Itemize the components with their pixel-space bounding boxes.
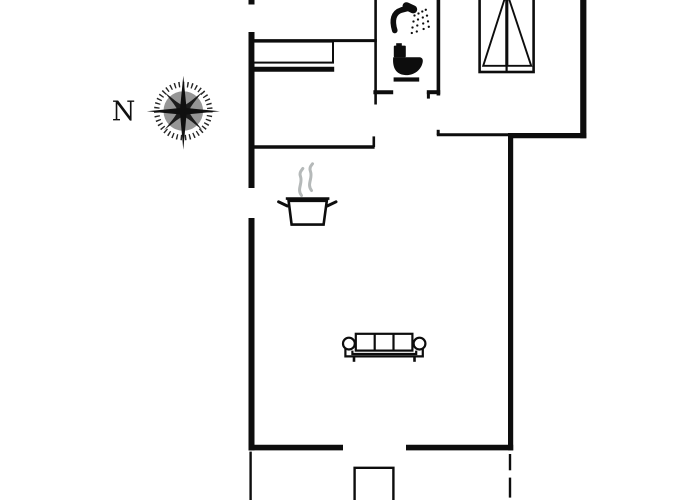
shower-arm [393,8,410,31]
toilet-bowl [393,57,423,75]
entrance-step [355,468,394,500]
pot-handle-left [279,202,288,206]
double-bed-icon [480,0,534,72]
cooking-pot-icon [279,164,336,225]
pot-body-group [279,199,336,225]
toilet-tank [394,46,406,58]
steam-wisp-right [310,164,313,191]
shower-icon [393,6,430,34]
interior-walls [250,0,510,147]
floor-plan-canvas: N [0,0,700,500]
steam-wisp-left [300,169,303,196]
sofa-icon [343,334,425,362]
pot-body [289,201,327,225]
compass-center-dot [181,109,185,113]
bed-triangle-left [483,0,506,66]
north-label: N [112,97,136,128]
sofa-arm-left [343,338,355,350]
pot-handle-right [327,202,336,206]
bed-triangle-right [507,0,531,66]
sofa-cushions [356,334,413,351]
compass-rose-icon: N [112,76,220,150]
counter-outline [253,42,333,63]
floor-plan-drawing: N [0,0,700,500]
shower-head [407,6,414,9]
steam-icon [300,164,313,196]
sofa-arm-right [414,338,426,350]
toilet-base [394,77,420,81]
toilet-icon [393,43,423,81]
kitchen-counter [253,42,334,70]
terrace-outline [251,452,510,500]
